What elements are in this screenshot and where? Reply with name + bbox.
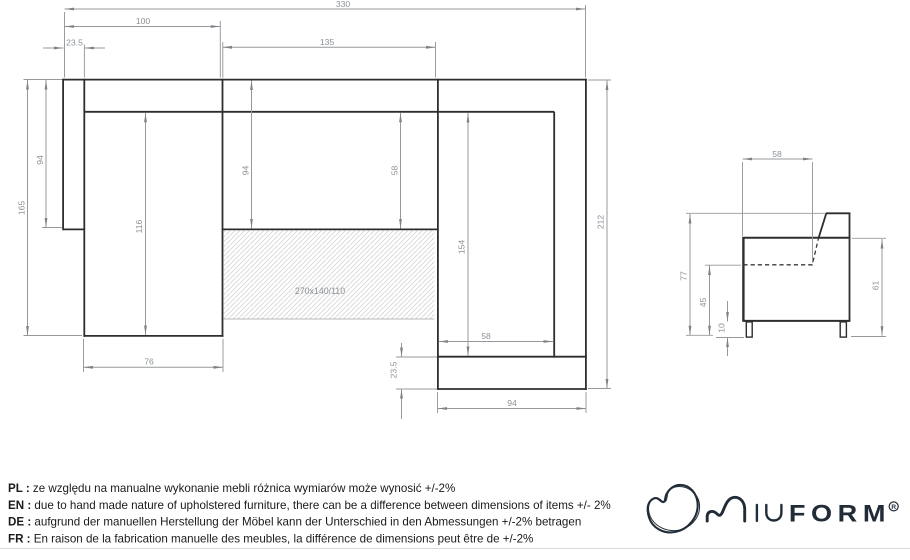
svg-text:DE : aufgrund der manuellen He: DE : aufgrund der manuellen Herstellung …	[8, 516, 581, 529]
svg-text:77: 77	[679, 271, 689, 281]
svg-text:FORM: FORM	[789, 501, 891, 527]
svg-text:23.5: 23.5	[66, 38, 83, 48]
svg-text:330: 330	[336, 0, 351, 9]
svg-text:154: 154	[457, 240, 467, 255]
svg-text:270x140/110: 270x140/110	[295, 286, 345, 296]
svg-text:135: 135	[320, 37, 335, 47]
svg-text:EN : due to hand made nature o: EN : due to hand made nature of upholste…	[8, 499, 611, 512]
svg-text:61: 61	[871, 281, 881, 291]
svg-text:10: 10	[717, 323, 727, 333]
svg-text:116: 116	[134, 219, 144, 233]
svg-text:FR : En raison de la fabricati: FR : En raison de la fabrication manuell…	[8, 532, 533, 545]
svg-text:76: 76	[144, 357, 154, 367]
svg-text:PL : ze względu na manualne wy: PL : ze względu na manualne wykonanie me…	[8, 482, 455, 495]
svg-text:58: 58	[772, 149, 782, 159]
svg-text:212: 212	[596, 215, 606, 230]
svg-text:100: 100	[136, 16, 151, 26]
svg-text:23.5: 23.5	[389, 361, 399, 378]
svg-text:45: 45	[698, 298, 708, 308]
svg-text:94: 94	[35, 155, 45, 165]
svg-text:R: R	[891, 504, 896, 511]
svg-text:58: 58	[481, 331, 491, 341]
svg-text:58: 58	[390, 166, 400, 176]
svg-text:165: 165	[17, 201, 27, 216]
svg-text:94: 94	[241, 166, 251, 176]
svg-text:94: 94	[507, 398, 517, 408]
